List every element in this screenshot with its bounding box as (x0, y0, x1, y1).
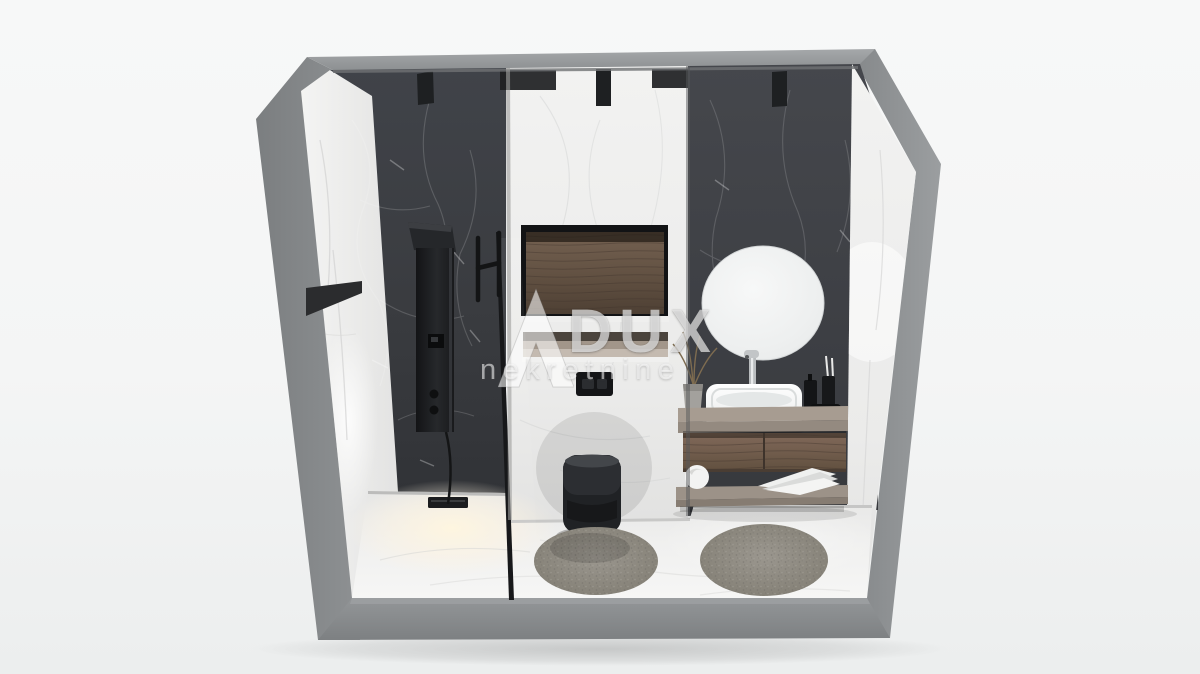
wall-niche-shelf (522, 332, 669, 362)
vanity-countertop (678, 406, 848, 422)
panel-knob (430, 390, 439, 399)
panel-knob (430, 406, 439, 415)
render-scene (0, 0, 1200, 674)
wall-niche-wood (520, 225, 669, 322)
vanity-mirror (702, 246, 824, 360)
spotlight-icon (417, 71, 434, 105)
spotlight-icon (596, 69, 611, 106)
bathroom-3d-render: DUX nekretnine (0, 0, 1200, 674)
vanity-rug (700, 524, 828, 596)
flush-plate (576, 372, 613, 396)
recessed-light-right (652, 69, 688, 88)
toilet-rug (534, 527, 658, 595)
spotlight-icon (772, 71, 787, 107)
bathroom-interior (301, 64, 918, 600)
shell-base (318, 598, 890, 640)
